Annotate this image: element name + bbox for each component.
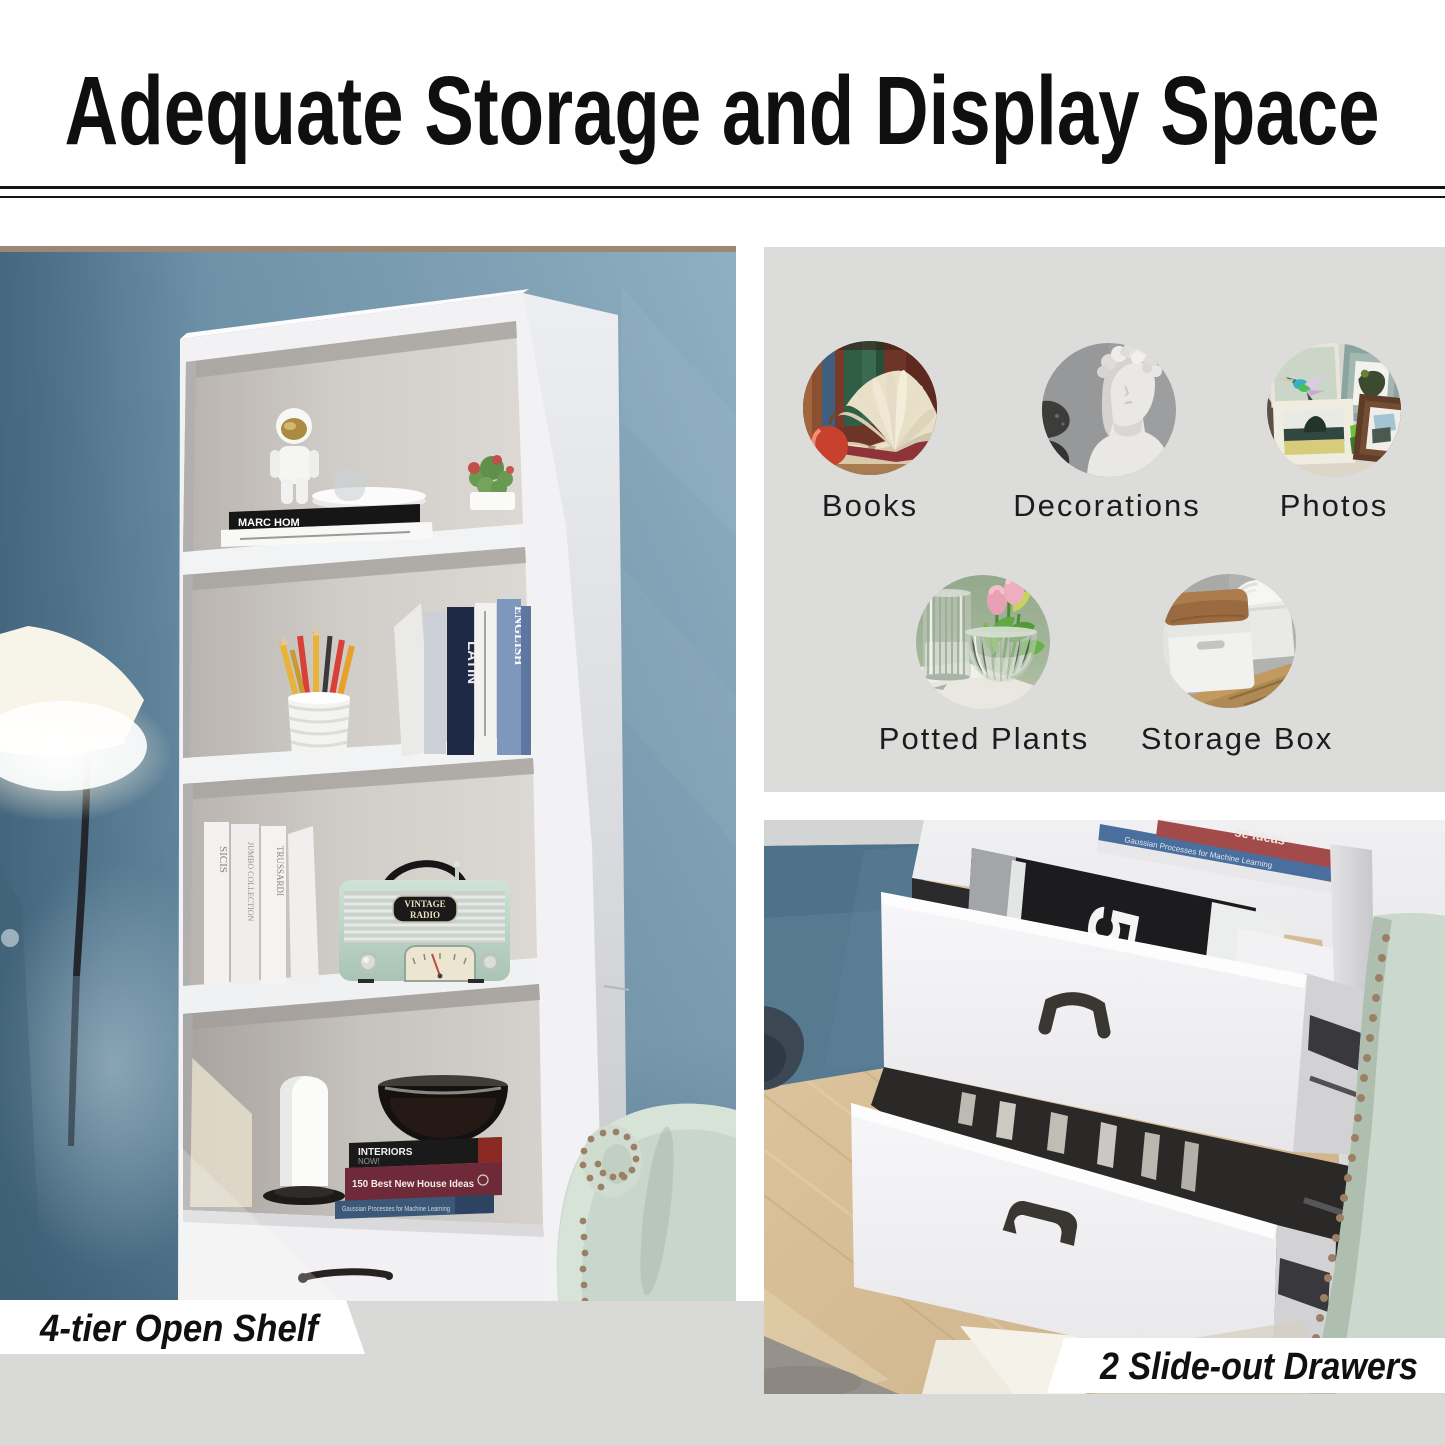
svg-text:4-tier Open Shelf: 4-tier Open Shelf xyxy=(39,1308,321,1350)
svg-text:MARC HOM: MARC HOM xyxy=(238,517,300,529)
svg-text:Gaussian Processes for Machine: Gaussian Processes for Machine Learning xyxy=(342,1206,450,1213)
svg-text:JUMBO COLLECTION: JUMBO COLLECTION xyxy=(246,842,255,922)
svg-text:NOW!: NOW! xyxy=(358,1157,380,1166)
svg-text:2 Slide-out Drawers: 2 Slide-out Drawers xyxy=(1099,1346,1418,1388)
svg-text:150 Best New House Ideas: 150 Best New House Ideas xyxy=(352,1179,474,1190)
svg-text:Adequate Storage and Display S: Adequate Storage and Display Space xyxy=(65,56,1380,165)
svg-text:RADIO: RADIO xyxy=(410,910,440,920)
svg-text:VINTAGE: VINTAGE xyxy=(404,899,445,909)
svg-text:TRUSSARDI: TRUSSARDI xyxy=(275,846,285,896)
svg-text:SICIS: SICIS xyxy=(217,846,229,873)
